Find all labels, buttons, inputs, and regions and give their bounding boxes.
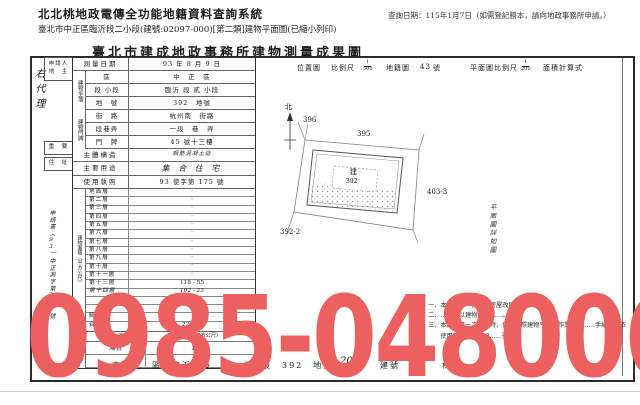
lane-label: 段巷弄 [86,123,129,135]
floor-area-value: · [129,198,255,204]
floor-row: 第十四層102 - 25 [86,289,255,297]
parcel-label-403-3: 403-3 [427,188,447,196]
attachment-use-header: 用 途 [86,332,146,341]
cadastral-sheet-unit: 號 [433,63,441,73]
survey-date-label: 測量日期 [73,58,129,70]
note-line-4: 使用（7F）……3……號。 [428,332,630,342]
floor-row: 第十層· [86,264,255,272]
location-scale-fraction: 1 500 [363,60,373,72]
address-box: 住 址 [44,157,73,171]
cadastral-sheet-label: 地籍圖 [386,63,410,73]
attachment-area: 10·08 [146,342,255,354]
floor-area-value: · [129,256,255,262]
footer-building-number: 2097 [340,356,365,367]
parcel-label: 地 號 [86,97,129,109]
floor-total-row: 合 計220·80 [86,322,255,332]
attachment-header-row: 用 途 面積（平方公尺） [86,332,255,342]
parcel-label-396: 396 [303,116,317,124]
license-label: 使用執照 [73,176,129,188]
plan-scale-fraction: 1 200 [521,60,531,72]
floor-label: 第十一層 [86,272,129,279]
row-main-use: 主要用途 集 合 住 宅 [73,162,255,176]
location-group-body: 區 中 正 區 段 小段 臨沂 段 貳 小段 地 號 392 地號 [86,71,255,110]
floor-row: 第八層· [86,247,255,255]
query-date: 查詢日期：115年1月7日（如需登記謄本，請向地政事務所申請。） [388,10,611,21]
system-title: 北北桃地政電傳全功能地籍資料查詢系統 [38,6,263,22]
number-value: 45 號十三樓 [129,136,255,148]
floor-label [86,297,129,304]
structure-value: 鋼筋混凝土造 [129,149,255,161]
parcel-label-392-2: 392-2 [280,228,300,236]
floor-label: 第六層 [86,230,129,237]
lane-value: 一段 巷 弄 [129,123,255,135]
row-parcel: 地 號 392 地號 [86,97,255,110]
plan-reference-note: 平面圖詳如圖 [487,204,497,280]
floor-label: 第九層 [86,255,129,262]
cadastral-sheet-number: 43 [420,63,431,71]
total-value: 220·80 [129,323,255,329]
floor-row: 第四層· [86,214,255,222]
floor-area-value: · [129,223,255,229]
floor-label: 第十層 [86,264,129,271]
street-label: 街 路 [86,110,129,122]
location-group-label: 建物坐落 [73,71,86,110]
building-center-tag: 建 [350,167,357,176]
applicant-label-1: 申請人 [49,61,69,69]
address-label: 住 址 [49,160,69,168]
floor-area-value: · [129,264,255,270]
area-calc-label: 面積計算式 [543,63,583,73]
row-structure: 主體構造 鋼筋混凝土造 [73,149,255,162]
note-line-3: 三、本建物第一次登記時，位置參照建物平面圖作業，本……手續……依 [428,321,630,331]
floor-label: 第十三層 [86,280,129,287]
number-label: 門 牌 [86,136,129,148]
parcel-label-395: 395 [357,130,370,138]
document-subtitle: 臺北市中正區臨沂段二小段(建號:02097-000)[第二類]建物平面圖(已縮小… [38,23,336,35]
floor-label: 第七層 [86,239,129,246]
row-section: 段 小段 臨沂 段 貳 小段 [86,84,255,97]
section-value: 臨沂 段 貳 小段 [129,84,255,96]
floor-row: 第二層· [86,197,255,205]
section-label: 段 小段 [86,84,129,96]
floor-row: 第三層· [86,206,255,214]
attachment-group-label: 附屬建物 [73,332,86,368]
location-map-label: 位置圖 [297,63,321,73]
survey-date-value: 93 年 8 月 9 日 [129,58,255,70]
street-value: 杭州南 街路 [129,110,255,122]
district-value: 中 正 區 [129,71,255,83]
group-floor-area: 建物面積（平方公尺） 地面層·第二層·第三層·第四層·第五層·第六層·第七層·第… [73,189,255,332]
structure-label: 主體構造 [73,149,129,161]
row-street: 街 路 杭州南 街路 [86,110,255,123]
floor-area-value: · [129,240,255,246]
doorplate-group-body: 街 路 杭州南 街路 段巷弄 一段 巷 弄 門 牌 45 號十三樓 [86,110,255,149]
building-center-number: 392 [346,178,358,185]
group-location: 建物坐落 區 中 正 區 段 小段 臨沂 段 貳 小段 地 號 392 地號 [73,71,255,110]
district-label: 區 [86,71,129,83]
attachment-area-header: 面積（平方公尺） [146,332,255,341]
use-value: 集 合 住 宅 [129,162,255,175]
notes-block: 一、本建物係 拆除 房屋改建……部分。 二、……係以建物登記……。 三、本建物第… [428,301,630,342]
row-number: 門 牌 45 號十三樓 [86,136,255,149]
use-label: 主要用途 [73,162,129,175]
floor-area-value: · [129,248,255,254]
group-doorplate: 建物門牌 街 路 杭州南 街路 段巷弄 一段 巷 弄 門 牌 45 號十三樓 [73,110,255,149]
plan-scale-denominator: 200 [521,67,531,73]
floor-area-value: · [129,215,255,221]
license-value: 93 使字第 175 號 [129,176,255,188]
floor-label: 第三層 [86,206,129,213]
floor-row: 第六層· [86,230,255,238]
floor-label [86,305,129,312]
floor-label: 第八層 [86,247,129,254]
attachment-row: 陽台10·08 [86,342,255,355]
floor-area-value: · [129,273,255,279]
floor-row: 騎 樓· [86,313,255,321]
row-license: 使用執照 93 使字第 175 號 [73,176,255,189]
plan-scale-label: 平面圖比例尺 [470,63,518,73]
floor-row: 第九層· [86,255,255,263]
floor-label: 騎 樓 [86,313,129,320]
floor-area-value: 118 - 55 [129,281,255,287]
floor-label: 第二層 [86,197,129,204]
floor-area-value: 102 - 25 [129,289,255,295]
note-line-2: 二、……係以建物登記……。 [428,311,630,321]
floor-row: 第七層· [86,239,255,247]
floor-area-group-label: 建物面積（平方公尺） [73,189,86,332]
attachment-use: 陽台 [86,342,146,354]
applicant-label-2: 地 主 [49,69,69,77]
floor-area-value: · [129,206,255,212]
floor-label: 第十四層 [86,289,129,296]
floor-row: 第五層· [86,222,255,230]
floor-label: 地面層 [86,189,129,196]
page-bottom-divider [0,391,640,392]
note-line-1: 一、本建物係 拆除 房屋改建……部分。 [428,301,630,311]
row-district: 區 中 正 區 [86,71,255,84]
application-number-note: 申請書（93）中正測字第257號 [47,210,56,312]
cadastral-sketch-map: 396 395 403-3 392-2 建 392 [276,110,481,248]
scale-label: 比例尺 [331,63,355,73]
row-lane: 段巷弄 一段 巷 弄 [86,123,255,136]
important-label: 重 要 [49,144,69,152]
footer-parcel-line: 中 正 區 臨沂 段 二 小 段 392 地號 [112,360,333,371]
floor-label: 第五層 [86,222,129,229]
footer-unit-label: 棟 [442,360,450,371]
floor-rows: 地面層·第二層·第三層·第四層·第五層·第六層·第七層·第八層·第九層·第十層·… [86,189,255,332]
applicant-box: 申請人 地 主 [44,57,73,81]
floor-area-value: · [129,190,255,196]
floor-row: 地面層· [86,189,255,197]
parcel-value: 392 地號 [129,97,255,109]
floor-area-value: · [129,298,255,304]
floor-row: · [86,305,255,313]
survey-form-table: 測量日期 93 年 8 月 9 日 建物坐落 區 中 正 區 段 小段 臨沂 段… [72,57,256,369]
floor-area-value: · [129,314,255,320]
total-label: 合 計 [86,322,129,331]
floor-area-value: · [129,231,255,237]
important-box: 重 要 [44,141,73,155]
floor-row: · [86,297,255,305]
footer-building-label: 建號 [380,360,400,371]
floor-area-value: · [129,306,255,312]
floor-label: 第四層 [86,214,129,221]
doorplate-group-label: 建物門牌 [73,110,86,149]
scale-denominator: 500 [363,67,373,73]
row-survey-date: 測量日期 93 年 8 月 9 日 [73,58,255,71]
